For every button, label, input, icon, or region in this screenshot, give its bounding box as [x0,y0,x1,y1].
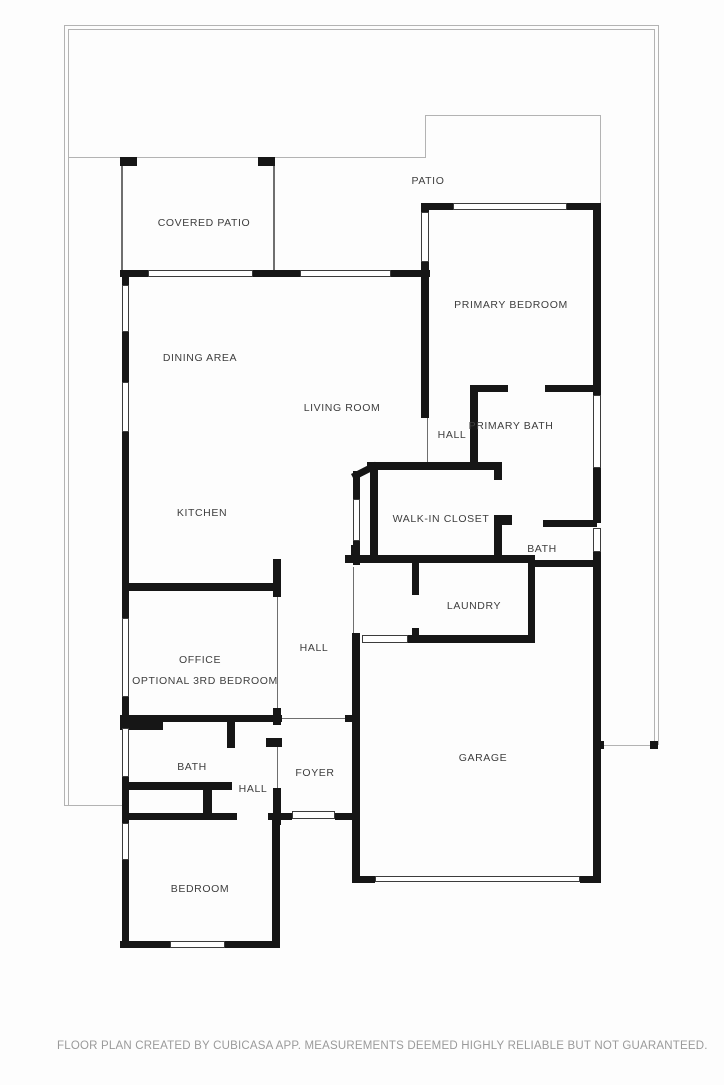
wall-segment [545,385,601,392]
room-label-office: OFFICE [179,654,221,666]
room-label-hall: HALL [438,429,467,441]
window-marker [292,811,335,819]
thin-wall [277,597,278,708]
wall-segment [122,860,129,948]
thin-wall [353,567,354,633]
wall-segment [543,520,597,527]
window-marker [353,499,360,541]
room-label-hall: HALL [239,783,268,795]
room-label-walk-in-closet: WALK-IN CLOSET [393,513,490,525]
property-line [64,25,658,26]
window-marker [421,212,429,262]
thin-wall [121,166,123,270]
wall-segment [593,552,601,883]
property-line [654,29,655,745]
wall-segment [120,715,282,722]
window-marker [453,203,567,210]
room-label-foyer: FOYER [295,767,334,779]
room-label-bedroom: BEDROOM [171,883,229,895]
wall-segment [227,718,235,748]
property-line [658,25,659,745]
room-label-primary-bedroom: PRIMARY BEDROOM [454,299,568,311]
wall-segment [502,515,512,525]
wall-segment [408,635,535,643]
room-label-bath: BATH [177,761,207,773]
disclaimer-text: FLOOR PLAN CREATED BY CUBICASA APP. MEAS… [57,1040,697,1052]
window-marker [300,270,391,277]
floor-plan-page: PATIOCOVERED PATIOPRIMARY BEDROOMDINING … [0,0,724,1085]
wall-segment [580,876,601,883]
window-marker [122,728,129,777]
wall-segment [268,813,292,820]
room-label-optional-3rd-bedroom: OPTIONAL 3RD BEDROOM [132,675,278,687]
wall-segment [593,468,601,523]
room-label-garage: GARAGE [459,752,508,764]
window-marker [122,382,129,432]
wall-segment [351,545,360,558]
wall-segment [370,462,378,557]
room-label-dining-area: DINING AREA [163,352,237,364]
room-label-covered-patio: COVERED PATIO [158,217,251,229]
window-marker [170,941,225,948]
wall-segment [272,820,280,948]
window-marker [148,270,253,277]
window-marker [593,395,601,468]
wall-segment [595,741,604,749]
wall-segment [122,813,237,820]
window-marker [593,528,601,552]
wall-segment [203,790,212,815]
wall-segment [266,738,282,747]
wall-segment [122,782,232,790]
thin-wall [273,166,275,270]
wall-segment [225,941,280,948]
window-marker [362,635,408,643]
room-label-patio: PATIO [412,175,445,187]
window-marker [375,876,580,882]
wall-segment [122,777,129,823]
wall-segment [421,262,429,418]
wall-segment [122,270,129,285]
room-label-laundry: LAUNDRY [447,600,501,612]
wall-segment [421,203,429,212]
wall-segment [345,555,535,563]
wall-segment [122,583,275,591]
wall-segment [367,462,502,470]
room-label-kitchen: KITCHEN [177,507,227,519]
wall-segment [412,563,419,595]
wall-segment [122,432,129,618]
property-line [64,805,122,806]
wall-segment [345,715,358,722]
property-line [68,29,69,805]
wall-segment [352,633,360,883]
property-line [600,115,601,203]
wall-segment [528,563,535,643]
wall-segment [253,270,300,277]
wall-segment [120,157,137,166]
property-line [425,115,426,158]
property-line [68,29,654,30]
room-label-bath: BATH [527,543,557,555]
wall-segment [593,203,601,395]
wall-segment [530,560,601,567]
thin-wall [282,718,345,719]
wall-segment [273,559,281,597]
wall-segment [258,157,275,166]
wall-segment [352,876,375,883]
wall-segment [335,813,358,820]
window-marker [122,285,129,332]
floor-plan: PATIOCOVERED PATIOPRIMARY BEDROOMDINING … [0,0,724,1085]
room-label-primary-bath: PRIMARY BATH [469,420,554,432]
window-marker [122,823,129,860]
room-label-hall: HALL [300,642,329,654]
property-line [425,115,601,116]
window-marker [122,618,129,697]
wall-segment [650,741,658,749]
room-label-living-room: LIVING ROOM [304,402,381,414]
wall-segment [122,332,129,382]
property-line [64,25,65,805]
thin-wall [277,747,278,788]
wall-segment [494,462,502,480]
thin-wall [427,418,428,462]
wall-segment [122,697,129,728]
